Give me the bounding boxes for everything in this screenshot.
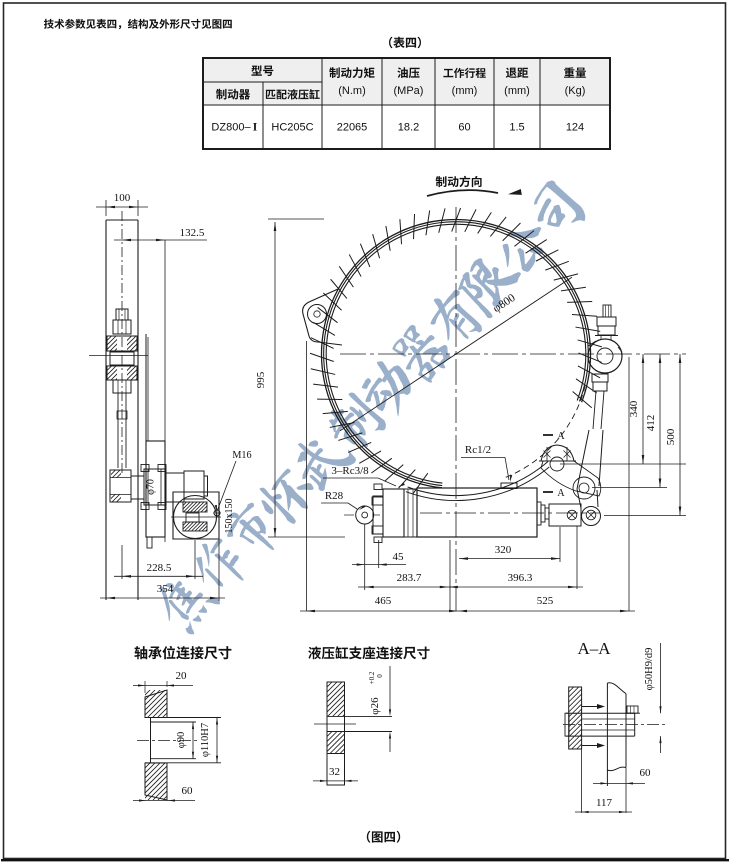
svg-text:φ50H9/d9: φ50H9/d9 xyxy=(644,648,655,691)
svg-text:3–Rc3/8: 3–Rc3/8 xyxy=(331,465,369,477)
svg-text:(MPa): (MPa) xyxy=(394,85,424,97)
svg-text:φ70: φ70 xyxy=(146,479,157,495)
svg-text:(Kg): (Kg) xyxy=(565,85,586,97)
svg-text:412: 412 xyxy=(645,415,657,432)
svg-text:(mm): (mm) xyxy=(452,85,478,97)
svg-text:45: 45 xyxy=(393,551,405,563)
svg-text:φ90: φ90 xyxy=(176,732,187,749)
svg-text:150x150: 150x150 xyxy=(224,499,235,534)
svg-text:100: 100 xyxy=(114,192,131,204)
svg-text:354: 354 xyxy=(157,583,174,595)
svg-text:0: 0 xyxy=(376,674,384,678)
svg-text:60: 60 xyxy=(640,767,652,779)
svg-text:R28: R28 xyxy=(325,490,344,502)
svg-text:22065: 22065 xyxy=(337,122,368,134)
svg-text:A: A xyxy=(557,488,565,499)
svg-text:+0.2: +0.2 xyxy=(368,671,376,684)
svg-text:60: 60 xyxy=(458,122,470,134)
svg-text:φ110H7: φ110H7 xyxy=(200,723,211,757)
svg-text:995: 995 xyxy=(255,371,267,388)
svg-text:396.3: 396.3 xyxy=(508,572,533,584)
svg-text:465: 465 xyxy=(375,595,392,607)
svg-text:525: 525 xyxy=(537,595,554,607)
svg-text:φ26: φ26 xyxy=(369,697,381,715)
svg-text:(N.m): (N.m) xyxy=(338,85,366,97)
svg-text:A–A: A–A xyxy=(577,639,611,658)
svg-text:1.5: 1.5 xyxy=(509,122,524,134)
svg-text:340: 340 xyxy=(628,400,640,417)
svg-text:60: 60 xyxy=(182,785,194,797)
svg-text:320: 320 xyxy=(495,544,512,556)
svg-text:M16: M16 xyxy=(232,450,251,461)
svg-text:20: 20 xyxy=(176,670,188,682)
svg-text:A: A xyxy=(557,431,565,442)
svg-text:Rc1/2: Rc1/2 xyxy=(465,444,491,456)
svg-text:124: 124 xyxy=(566,122,584,134)
svg-text:18.2: 18.2 xyxy=(398,122,419,134)
svg-text:HC205C: HC205C xyxy=(271,122,313,134)
svg-text:DZ800–: DZ800– xyxy=(211,122,251,134)
svg-text:283.7: 283.7 xyxy=(397,572,422,584)
svg-text:(mm): (mm) xyxy=(504,85,530,97)
svg-text:500: 500 xyxy=(665,428,677,445)
svg-text:132.5: 132.5 xyxy=(180,227,205,239)
svg-text:228.5: 228.5 xyxy=(147,562,172,574)
svg-text:32: 32 xyxy=(329,766,340,778)
svg-text:117: 117 xyxy=(596,797,613,809)
svg-text:I: I xyxy=(253,122,258,134)
